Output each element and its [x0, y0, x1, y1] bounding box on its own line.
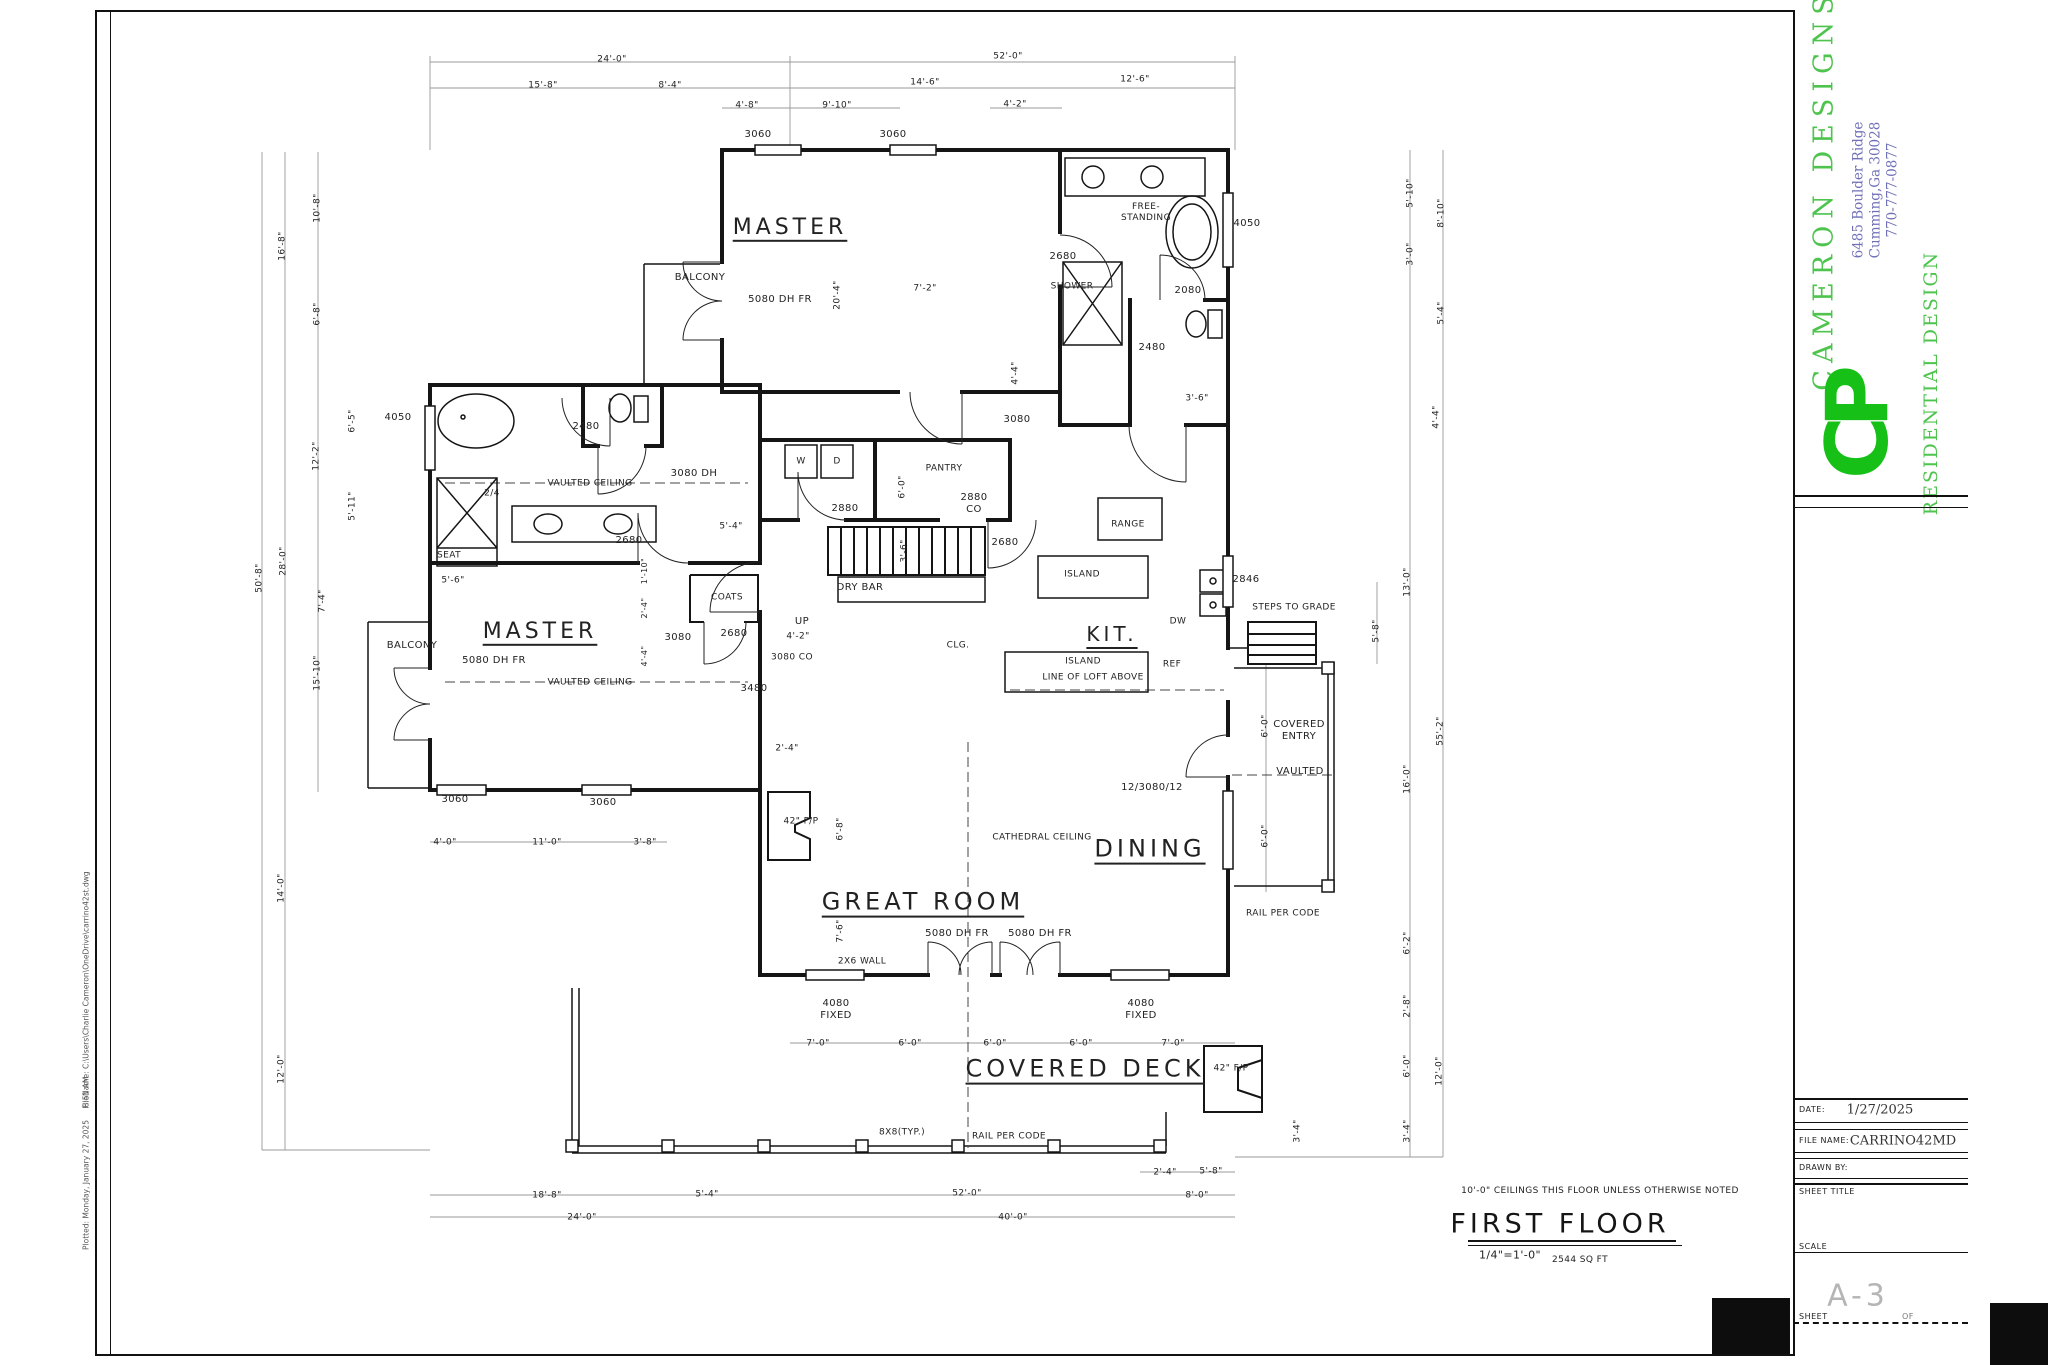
plan-annotation: 4'-2" — [786, 632, 809, 643]
plot-filename-text: FileName: C:\Users\Charlie Cameron\OneDr… — [82, 871, 91, 1108]
drawing-sheet: FileName: C:\Users\Charlie Cameron\OneDr… — [0, 0, 2048, 1365]
plot-time-text: 8:51 AM — [82, 1077, 91, 1108]
plan-annotation: 2'-8" — [1403, 994, 1414, 1017]
plan-annotation: 3060 — [744, 129, 771, 141]
field-row-line — [1793, 1098, 1968, 1100]
plan-annotation: CATHEDRAL CEILING — [992, 833, 1091, 844]
plan-annotation: BALCONY — [675, 272, 726, 284]
plan-annotation: 2X6 WALL — [838, 957, 886, 968]
plan-annotation: ISLAND — [1064, 570, 1100, 581]
plan-annotation: 5080 DH FR — [748, 294, 812, 306]
plan-annotation: VAULTED — [1276, 766, 1323, 778]
plan-annotation: 4050 — [1233, 218, 1260, 230]
plan-annotation: 8'-10" — [1437, 198, 1448, 227]
plan-annotation: 2680 — [991, 537, 1018, 549]
plan-annotation: 40'-0" — [998, 1213, 1027, 1224]
plan-annotation: UP — [795, 616, 809, 628]
plan-annotation: 14'-0" — [277, 873, 288, 902]
field-row-line — [1793, 1158, 1968, 1159]
plan-annotation: CLG. — [947, 641, 970, 652]
plan-annotation: 5080 DH FR — [462, 655, 526, 667]
plan-annotation: 55'-2" — [1436, 716, 1447, 745]
plan-annotation: 2680 — [615, 535, 642, 547]
plan-annotation: 6'-0" — [1403, 1054, 1414, 1077]
plan-annotation: 2846 — [1232, 574, 1259, 586]
company-logo: CP — [1808, 377, 1908, 479]
plan-annotation: 3060 — [879, 129, 906, 141]
plan-annotation: 8'-0" — [1185, 1191, 1208, 1202]
room-label: DINING — [1094, 835, 1205, 864]
plan-annotation: 16'-8" — [278, 231, 289, 260]
sheet-number: A-3 — [1827, 1279, 1889, 1314]
plan-annotation: 14'-6" — [910, 78, 939, 89]
plan-annotation: 2080 — [1174, 285, 1201, 297]
plan-annotation: 9'-10" — [822, 101, 851, 112]
plan-annotation: 7'-4" — [318, 589, 329, 612]
plan-annotation: 42" F/P — [1214, 1064, 1249, 1075]
plan-annotation: 42" F/P — [784, 817, 819, 828]
room-label: KIT. — [1086, 622, 1137, 646]
plan-annotation: 2'-4" — [1153, 1168, 1176, 1179]
plan-annotation: RAIL PER CODE — [972, 1132, 1046, 1143]
plan-annotation: 5080 DH FR — [1008, 928, 1072, 940]
plan-annotation: 3'-6" — [900, 539, 911, 562]
field-row-line — [1793, 1183, 1968, 1185]
plan-annotation: COATS — [711, 593, 743, 604]
plan-annotation: 24'-0" — [567, 1213, 596, 1224]
plan-annotation: 7'-6" — [836, 919, 847, 942]
field-row-line — [1793, 1178, 1968, 1179]
company-address: 6485 Boulder Ridge Cumming,Ga 30028 770-… — [1851, 122, 1902, 259]
plan-annotation: 12/3080/12 — [1121, 782, 1183, 794]
plan-annotation: 5080 DH FR — [925, 928, 989, 940]
plan-annotation: 3080 — [1003, 414, 1030, 426]
plan-annotation: 13'-0" — [1403, 567, 1414, 596]
plan-annotation: LINE OF LOFT ABOVE — [1042, 673, 1143, 684]
plan-annotation: 4'-8" — [735, 101, 758, 112]
scale-label: SCALE — [1799, 1242, 1827, 1251]
title-underline — [1468, 1240, 1676, 1242]
plan-annotation: 11'-0" — [532, 838, 561, 849]
plan-annotation: 52'-0" — [993, 52, 1022, 63]
plan-annotation: 6'-2" — [1403, 931, 1414, 954]
of-label: OF — [1902, 1312, 1914, 1321]
title-block-divider — [1793, 495, 1968, 497]
plan-title: FIRST FLOOR — [1450, 1209, 1669, 1240]
plan-annotation: 5'-11" — [348, 491, 359, 520]
plan-annotation: ISLAND — [1065, 657, 1101, 668]
plan-annotation: 5'-10" — [1406, 178, 1417, 207]
plan-annotation: 6'-0" — [898, 475, 909, 498]
plan-annotation: 4080 FIXED — [820, 998, 852, 1022]
plan-annotation: 28'-0" — [279, 546, 290, 575]
plan-annotation: 10'-8" — [313, 193, 324, 222]
plan-annotation: 5'-6" — [441, 576, 464, 587]
field-row-line — [1793, 1122, 1968, 1123]
plan-annotation: 4'-4" — [1011, 361, 1022, 384]
plan-annotation: 2'-4" — [640, 598, 650, 619]
plan-annotation: 3080 DH — [671, 468, 718, 480]
plan-annotation: 3060 — [589, 797, 616, 809]
plan-annotation: 2680 — [720, 628, 747, 640]
room-label: MASTER — [733, 215, 848, 241]
plan-annotation: 3080 CO — [771, 653, 813, 664]
plan-annotation: DRY BAR — [837, 582, 884, 594]
plan-area: 2544 SQ FT — [1552, 1255, 1608, 1265]
ceiling-note: 10'-0" CEILINGS THIS FLOOR UNLESS OTHERW… — [1461, 1186, 1739, 1196]
plan-annotation: 5'-8" — [1372, 619, 1383, 642]
field-row-line — [1793, 1252, 1968, 1253]
plan-annotation: 6'-0" — [1261, 824, 1272, 847]
plan-annotation: STEPS TO GRADE — [1252, 603, 1336, 614]
plan-annotation: 3080 — [664, 632, 691, 644]
plan-annotation: 6'-0" — [1069, 1039, 1092, 1050]
file-name-value: CARRINO42MD — [1850, 1134, 1956, 1149]
plan-annotation: RAIL PER CODE — [1246, 909, 1320, 920]
plan-annotation: 3060 — [441, 794, 468, 806]
plan-annotation: 3'-4" — [1403, 1119, 1414, 1142]
plan-annotation: BALCONY — [387, 640, 438, 652]
plan-annotation: 7'-2" — [913, 284, 936, 295]
plan-annotation: 4080 FIXED — [1125, 998, 1157, 1022]
plan-annotation: 15'-8" — [528, 81, 557, 92]
plan-annotation: 12'-2" — [312, 441, 323, 470]
plan-annotation: COVERED ENTRY — [1273, 719, 1325, 743]
plan-annotation: 52'-0" — [952, 1189, 981, 1200]
sheet-title-label: SHEET TITLE — [1799, 1187, 1855, 1196]
plan-annotation: 3480 — [740, 683, 767, 695]
title-underline-2 — [1468, 1245, 1682, 1246]
sheet-border — [95, 10, 1968, 1356]
plan-annotation: 5'-4" — [695, 1190, 718, 1201]
date-label: DATE: — [1799, 1105, 1825, 1114]
plan-annotation: 4'-4" — [640, 646, 650, 667]
plan-annotation: 1'-10" — [640, 558, 650, 584]
plan-annotation: 6'-0" — [983, 1039, 1006, 1050]
plan-annotation: 4'-4" — [1432, 405, 1443, 428]
plan-annotation: 3'-8" — [633, 838, 656, 849]
company-tagline: RESIDENTIAL DESIGN — [1920, 251, 1942, 515]
plan-annotation: REF — [1163, 660, 1181, 671]
room-label: MASTER — [483, 619, 598, 645]
sheet-border-inner — [110, 10, 111, 1356]
plan-annotation: 50'-8" — [255, 563, 266, 592]
plan-annotation: 12'-0" — [1435, 1056, 1446, 1085]
plan-annotation: VAULTED CEILING — [547, 678, 632, 689]
plan-annotation: W — [796, 457, 805, 468]
drawn-by-label: DRAWN BY: — [1799, 1163, 1848, 1172]
plan-annotation: 5'-4" — [1437, 301, 1448, 324]
plan-annotation: 18'-8" — [532, 1191, 561, 1202]
plan-annotation: VAULTED CEILING — [547, 479, 632, 490]
plan-annotation: 6'-5" — [348, 409, 359, 432]
plan-annotation: 2880 — [831, 503, 858, 515]
plan-annotation: 2480 — [572, 421, 599, 433]
plan-annotation: 7'-0" — [1161, 1039, 1184, 1050]
plan-annotation: 4050 — [384, 412, 411, 424]
plot-date-text: Plotted: Monday, January 27, 2025 — [82, 1120, 91, 1250]
plan-annotation: 20'-4" — [833, 280, 844, 309]
field-row-line — [1793, 1152, 1968, 1153]
plan-annotation: 2680 — [1049, 251, 1076, 263]
plan-annotation: 3'-6" — [1185, 394, 1208, 405]
field-row-line — [1793, 1322, 1968, 1324]
plan-annotation: 3'-0" — [1406, 242, 1417, 265]
plan-scale: 1/4"=1'-0" — [1479, 1249, 1541, 1262]
plan-annotation: 6'-8" — [836, 817, 847, 840]
sheet-label: SHEET — [1799, 1312, 1828, 1321]
plan-annotation: 15'-10" — [313, 655, 324, 691]
plan-annotation: 2'-4" — [775, 744, 798, 755]
plan-annotation: RANGE — [1111, 520, 1144, 531]
plan-annotation: 4'-0" — [433, 838, 456, 849]
plan-annotation: 4'-2" — [1003, 100, 1026, 111]
plan-annotation: 2/4 — [484, 489, 500, 500]
plan-annotation: FREE- STANDING — [1121, 202, 1171, 224]
date-value: 1/27/2025 — [1847, 1103, 1914, 1118]
plan-annotation: 2480 — [1138, 342, 1165, 354]
plan-annotation: 12'-0" — [277, 1054, 288, 1083]
plan-annotation: 7'-0" — [806, 1039, 829, 1050]
plan-annotation: 3'-4" — [1293, 1119, 1304, 1142]
room-label: COVERED DECK — [966, 1055, 1205, 1084]
plan-annotation: 5'-4" — [719, 522, 742, 533]
title-block-divider — [1793, 507, 1968, 508]
plan-annotation: PANTRY — [926, 464, 963, 475]
plan-annotation: DW — [1170, 617, 1187, 628]
plan-annotation: 6'-8" — [313, 302, 324, 325]
plan-annotation: 2880 CO — [960, 492, 987, 516]
plan-annotation: 5'-8" — [1199, 1167, 1222, 1178]
plan-annotation: D — [833, 457, 840, 468]
field-row-line — [1793, 1129, 1968, 1130]
plan-annotation: SHOWER — [1051, 282, 1094, 293]
plan-annotation: 12'-6" — [1120, 75, 1149, 86]
plan-annotation: 8'-4" — [658, 81, 681, 92]
room-label: GREAT ROOM — [822, 888, 1024, 917]
plan-annotation: 16'-0" — [1403, 764, 1414, 793]
company-name: CAMERON DESIGNS — [1809, 0, 1840, 391]
plan-annotation: 24'-0" — [597, 55, 626, 66]
file-name-label: FILE NAME: — [1799, 1136, 1849, 1145]
plan-annotation: 6'-0" — [1261, 714, 1272, 737]
plan-annotation: 6'-0" — [898, 1039, 921, 1050]
plan-annotation: 8X8(TYP.) — [879, 1128, 925, 1139]
plan-annotation: SEAT — [437, 551, 461, 562]
